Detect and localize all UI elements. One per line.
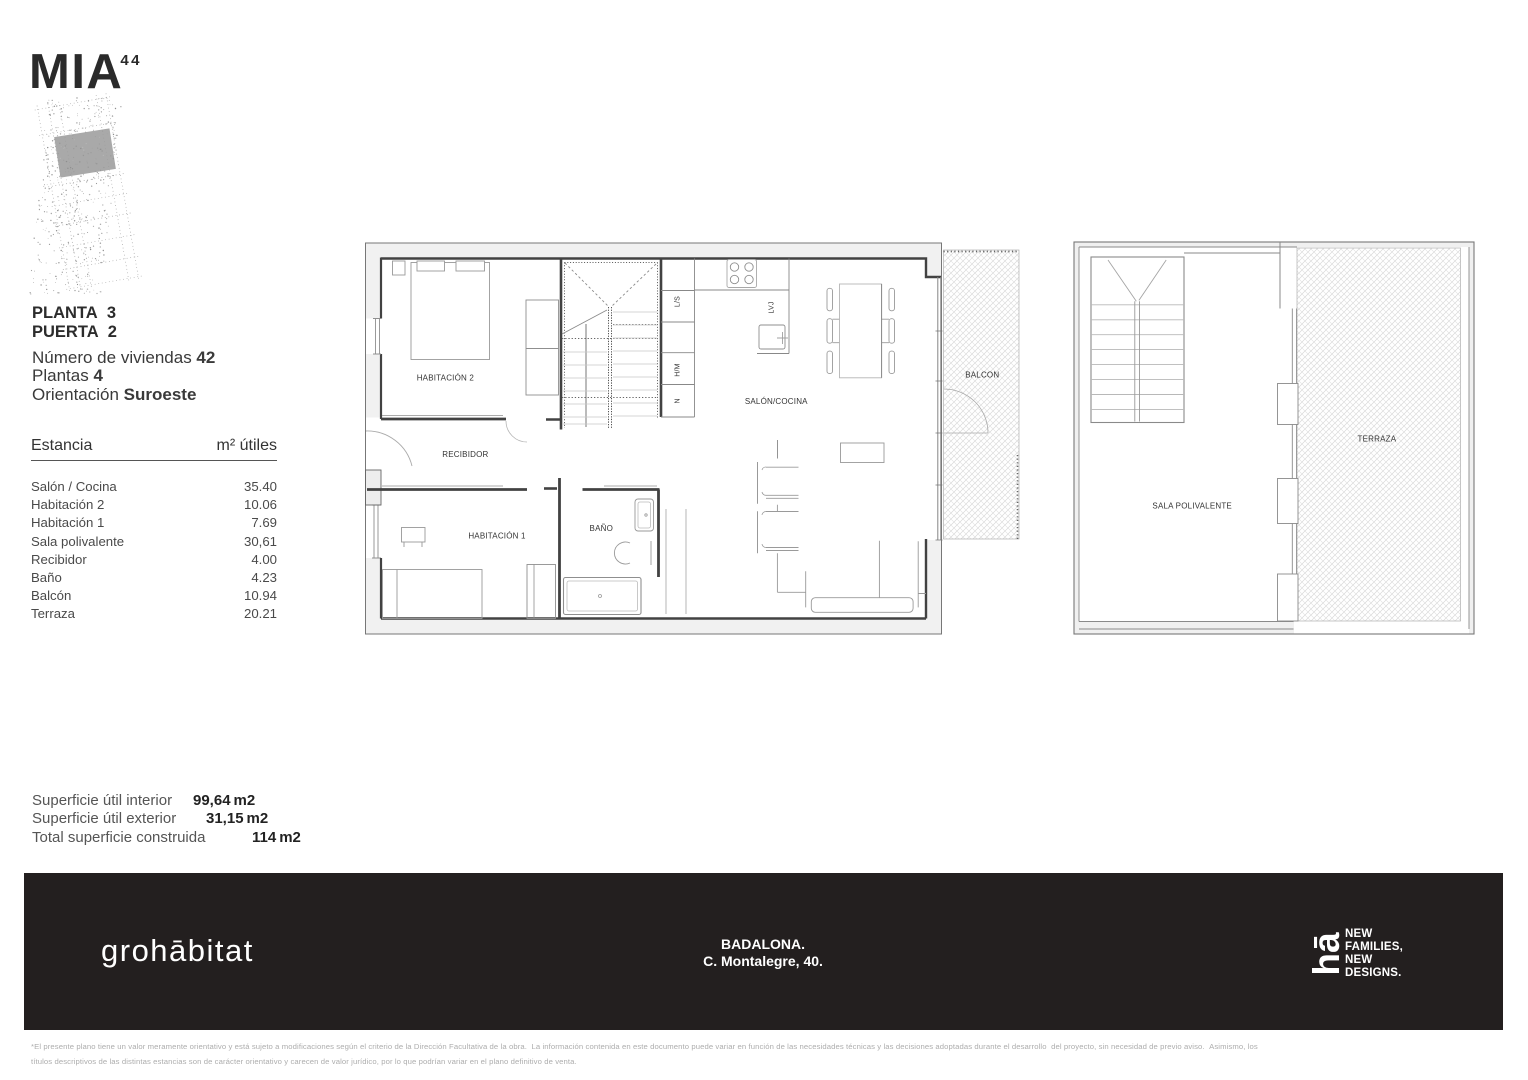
svg-text:RECIBIDOR: RECIBIDOR	[442, 450, 488, 459]
svg-text:H/M: H/M	[675, 363, 682, 376]
svg-text:BAÑO: BAÑO	[590, 524, 613, 533]
svg-text:LVJ: LVJ	[769, 301, 776, 313]
svg-text:L/S: L/S	[675, 296, 682, 307]
svg-text:HABITACIÓN 1: HABITACIÓN 1	[468, 531, 526, 540]
svg-text:HABITACIÓN 2: HABITACIÓN 2	[417, 374, 475, 383]
svg-text:SALA POLIVALENTE: SALA POLIVALENTE	[1152, 502, 1232, 511]
svg-text:TERRAZA: TERRAZA	[1358, 435, 1397, 444]
svg-text:SALÓN/COCINA: SALÓN/COCINA	[745, 397, 808, 406]
svg-text:N: N	[675, 398, 682, 403]
svg-text:BALCON: BALCON	[965, 370, 999, 379]
